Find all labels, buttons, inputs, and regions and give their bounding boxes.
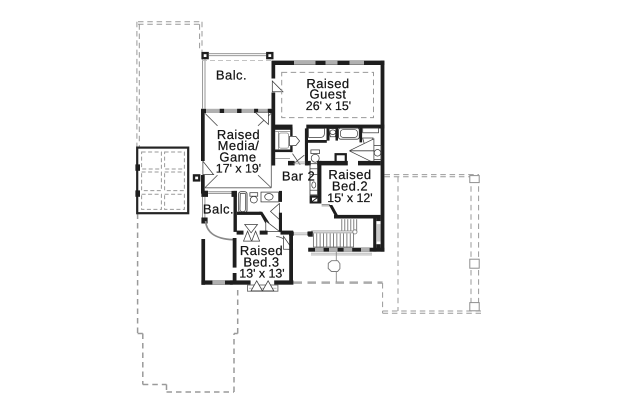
svg-text:17' x 19': 17' x 19' xyxy=(216,161,261,175)
svg-text:Balc.: Balc. xyxy=(216,68,247,83)
svg-text:15' x 12': 15' x 12' xyxy=(327,191,372,205)
svg-text:Balc.: Balc. xyxy=(203,201,234,216)
svg-text:26' x 15': 26' x 15' xyxy=(306,99,351,113)
svg-text:13' x 13': 13' x 13' xyxy=(239,267,284,281)
svg-text:Bar 2: Bar 2 xyxy=(282,169,315,184)
